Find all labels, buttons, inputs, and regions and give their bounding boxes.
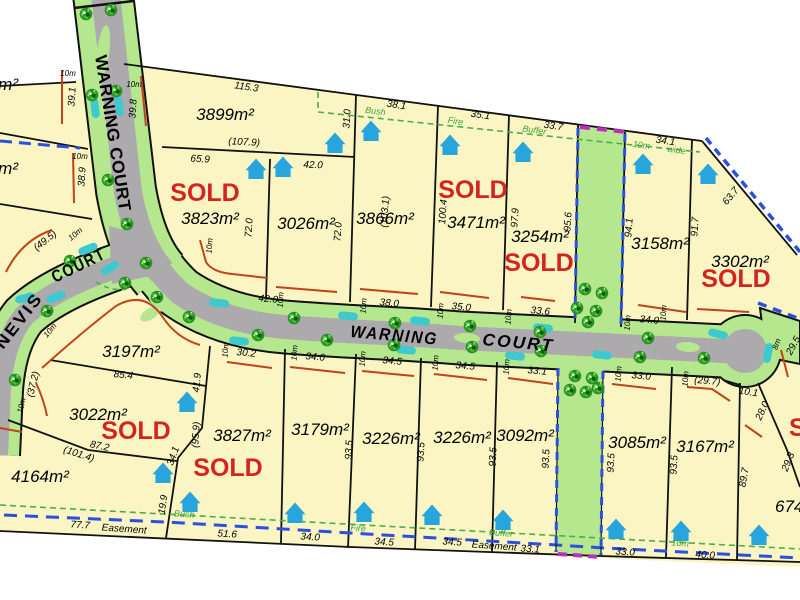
svg-text:3823m²: 3823m² — [181, 209, 240, 228]
svg-text:6747m²: 6747m² — [775, 497, 800, 516]
svg-text:10m: 10m — [501, 358, 511, 374]
svg-text:31.0: 31.0 — [341, 108, 353, 129]
svg-text:3167m²: 3167m² — [676, 437, 735, 456]
svg-text:10m: 10m — [275, 291, 285, 307]
svg-text:10m: 10m — [289, 344, 299, 360]
svg-text:Fire: Fire — [447, 115, 464, 127]
svg-text:3085m²: 3085m² — [608, 433, 667, 452]
svg-text:42.0: 42.0 — [303, 160, 323, 172]
svg-text:3254m²: 3254m² — [511, 227, 570, 246]
svg-text:34.5: 34.5 — [382, 355, 403, 368]
svg-text:10m: 10m — [671, 537, 690, 548]
svg-text:3226m²: 3226m² — [362, 429, 421, 448]
svg-text:4164m²: 4164m² — [11, 467, 70, 486]
svg-text:Buffer: Buffer — [489, 527, 515, 539]
svg-text:3026m²: 3026m² — [277, 214, 336, 233]
svg-text:95.6: 95.6 — [562, 211, 574, 232]
svg-text:10m: 10m — [220, 341, 230, 357]
svg-text:10m: 10m — [60, 69, 76, 78]
svg-text:3827m²: 3827m² — [213, 426, 272, 445]
svg-text:Fire: Fire — [350, 522, 366, 533]
svg-text:3226m²: 3226m² — [433, 428, 492, 447]
svg-text:SOLD: SOLD — [193, 454, 262, 482]
svg-text:3197m²: 3197m² — [102, 342, 161, 361]
svg-text:93.5: 93.5 — [669, 454, 681, 474]
svg-text:40.0: 40.0 — [695, 549, 716, 561]
svg-text:34.0: 34.0 — [639, 314, 660, 327]
svg-text:SOLD: SOLD — [170, 179, 239, 207]
svg-text:(103.1): (103.1) — [379, 196, 392, 228]
svg-text:93.5: 93.5 — [488, 446, 500, 466]
svg-text:SOLD: SOLD — [789, 414, 800, 442]
svg-text:10m: 10m — [622, 314, 632, 330]
svg-text:33.1: 33.1 — [527, 365, 547, 378]
svg-text:34.5: 34.5 — [442, 536, 463, 548]
svg-text:2m²: 2m² — [0, 75, 19, 94]
svg-text:0m²: 0m² — [0, 159, 19, 178]
svg-text:10m: 10m — [680, 370, 690, 386]
svg-text:34.0: 34.0 — [300, 531, 321, 543]
svg-text:10m: 10m — [357, 350, 367, 366]
svg-text:3179m²: 3179m² — [291, 420, 350, 439]
svg-text:33.0: 33.0 — [615, 546, 636, 558]
svg-text:33.1: 33.1 — [520, 543, 540, 555]
svg-text:34.5: 34.5 — [455, 360, 476, 373]
svg-text:10m: 10m — [358, 297, 368, 313]
svg-text:94.1: 94.1 — [623, 218, 635, 238]
svg-text:10m: 10m — [430, 354, 440, 370]
svg-text:39.1: 39.1 — [66, 87, 78, 107]
svg-text:SOLD: SOLD — [701, 265, 770, 293]
svg-text:SOLD: SOLD — [504, 249, 573, 277]
svg-text:10m: 10m — [658, 304, 668, 320]
svg-text:SOLD: SOLD — [101, 417, 170, 445]
svg-text:85.4: 85.4 — [113, 369, 134, 382]
svg-text:77.7: 77.7 — [70, 519, 91, 531]
svg-text:3899m²: 3899m² — [196, 105, 255, 124]
svg-text:34.5: 34.5 — [374, 536, 395, 548]
svg-text:35.0: 35.0 — [451, 301, 472, 314]
svg-text:33.6: 33.6 — [530, 305, 551, 318]
svg-text:38.9: 38.9 — [76, 166, 88, 187]
svg-text:10m: 10m — [613, 365, 623, 381]
svg-text:3471m²: 3471m² — [447, 213, 506, 232]
svg-text:3158m²: 3158m² — [631, 234, 690, 253]
svg-text:3092m²: 3092m² — [496, 426, 555, 445]
svg-text:38.0: 38.0 — [379, 297, 400, 310]
svg-text:34.0: 34.0 — [305, 351, 326, 364]
svg-text:(95.9): (95.9) — [190, 421, 203, 448]
svg-text:10m: 10m — [204, 237, 214, 253]
svg-text:(29.7): (29.7) — [694, 375, 721, 388]
svg-text:51.6: 51.6 — [217, 528, 238, 540]
svg-text:93.5: 93.5 — [541, 448, 553, 468]
svg-text:93.5: 93.5 — [416, 441, 428, 461]
svg-text:10m: 10m — [126, 80, 142, 89]
svg-text:Bush: Bush — [174, 508, 195, 519]
svg-text:72.0: 72.0 — [332, 221, 344, 242]
svg-text:10m: 10m — [503, 308, 513, 324]
svg-text:10m: 10m — [72, 152, 88, 161]
svg-text:72.0: 72.0 — [243, 217, 255, 238]
svg-text:30.2: 30.2 — [236, 347, 257, 360]
svg-text:65.9: 65.9 — [190, 154, 210, 166]
svg-text:93.5: 93.5 — [344, 439, 356, 459]
svg-text:41.9: 41.9 — [191, 372, 204, 393]
svg-text:10m: 10m — [435, 302, 445, 318]
svg-text:39.8: 39.8 — [127, 98, 139, 119]
svg-text:100.4: 100.4 — [437, 199, 450, 225]
svg-text:91.7: 91.7 — [689, 216, 701, 237]
svg-text:(107.9): (107.9) — [228, 136, 260, 149]
svg-text:33.0: 33.0 — [631, 370, 652, 383]
svg-text:93.5: 93.5 — [606, 452, 618, 472]
svg-text:97.9: 97.9 — [509, 207, 521, 228]
